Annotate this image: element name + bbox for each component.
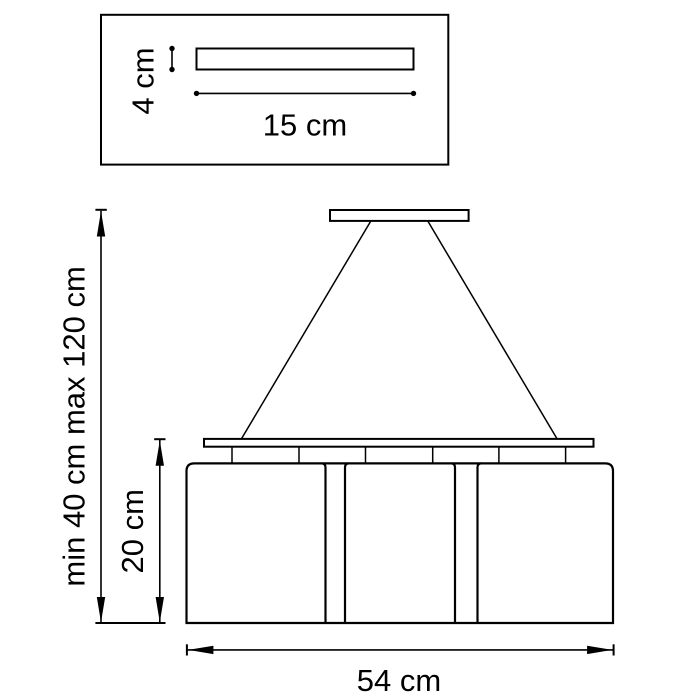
svg-text:20 cm: 20 cm: [115, 489, 150, 573]
svg-text:54 cm: 54 cm: [357, 663, 441, 698]
svg-text:4 cm: 4 cm: [126, 47, 161, 114]
svg-text:15 cm: 15 cm: [263, 108, 347, 143]
svg-text:min 40 cm max 120 cm: min 40 cm max 120 cm: [56, 266, 91, 586]
